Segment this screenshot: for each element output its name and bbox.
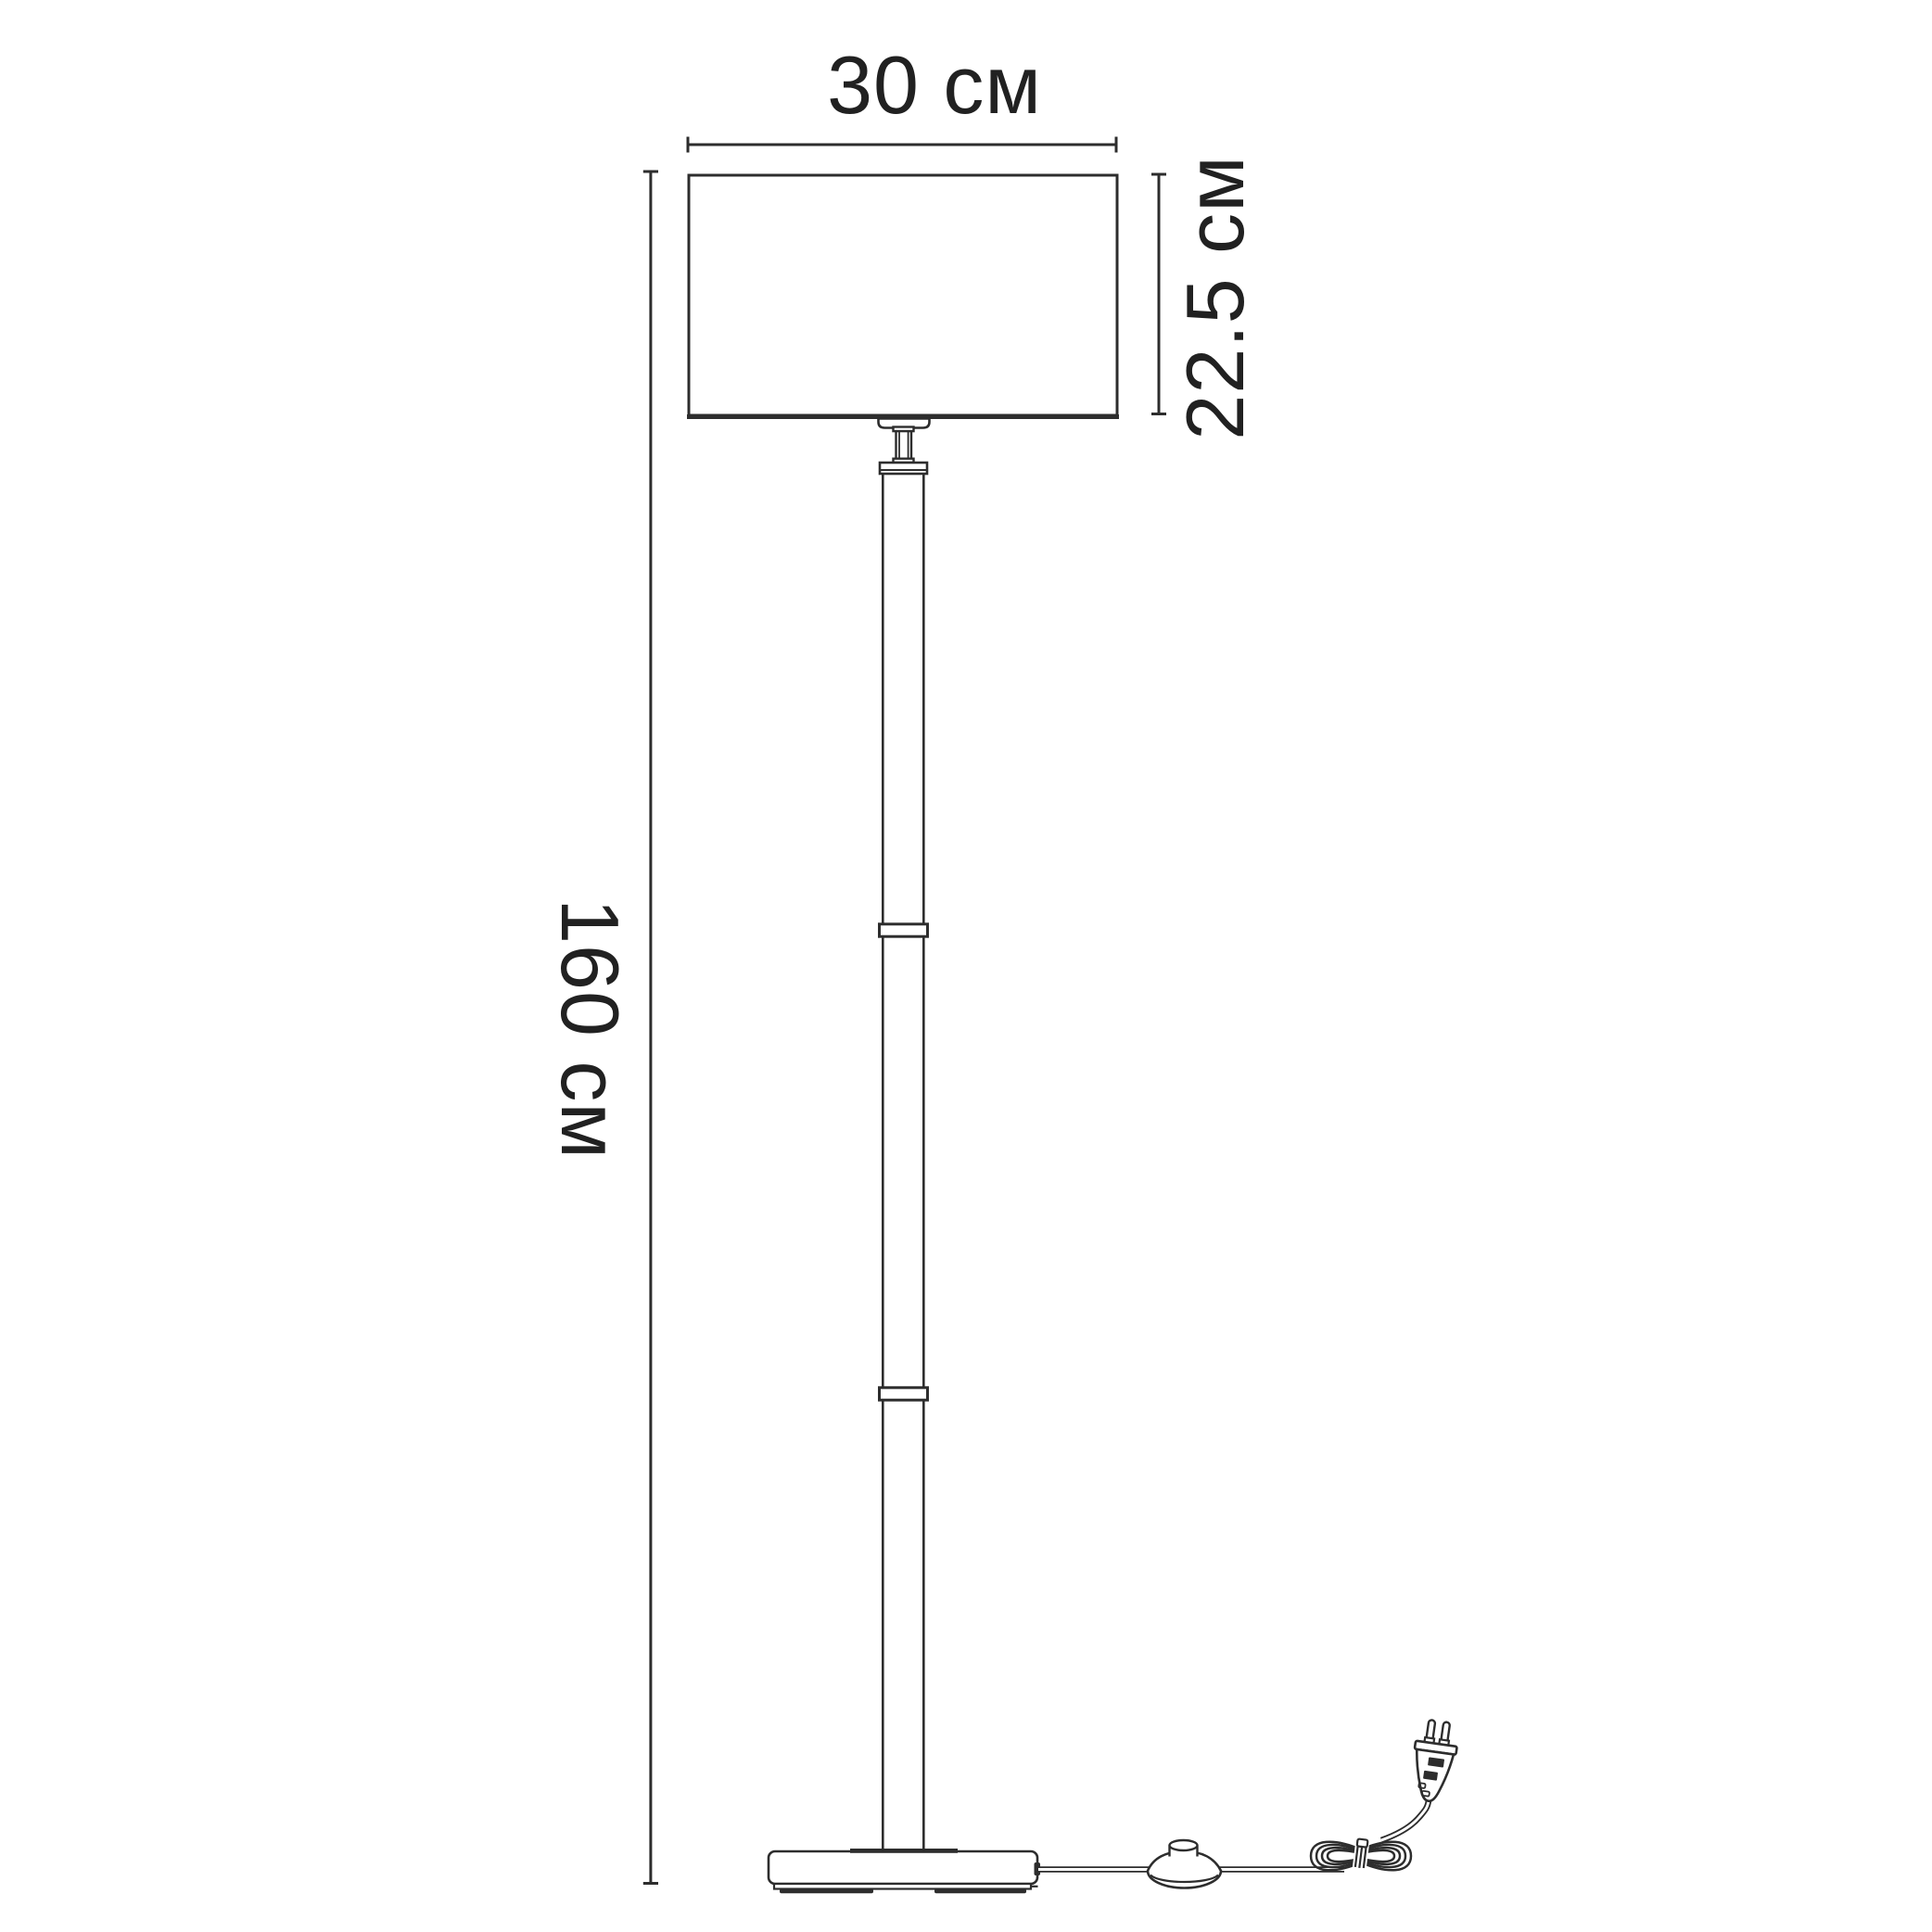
base-foot-pad-left bbox=[780, 1889, 873, 1894]
foot-switch-button bbox=[1170, 1840, 1198, 1857]
lampshade bbox=[687, 175, 1119, 417]
pole-joint-lower bbox=[880, 1388, 928, 1400]
shade-height-label: 22.5 см bbox=[1175, 155, 1256, 439]
total-height-label: 160 см bbox=[549, 898, 630, 1160]
floor-lamp-line-drawing bbox=[0, 0, 1932, 1932]
lamp-base bbox=[769, 1849, 1040, 1893]
foot-switch bbox=[1148, 1840, 1221, 1888]
dimension-line-shade-width bbox=[688, 137, 1116, 153]
base-foot-pad-right bbox=[934, 1889, 1026, 1894]
lamp-pole bbox=[880, 474, 928, 1850]
cord-to-plug bbox=[1381, 1800, 1429, 1840]
shade-width-label: 30 см bbox=[827, 44, 1042, 126]
lamp-socket-neck bbox=[879, 419, 930, 475]
dimension-line-shade-height bbox=[1151, 174, 1166, 414]
dimension-diagram: 30 см 22.5 см 160 см bbox=[0, 0, 1932, 1932]
dimension-line-total-height bbox=[643, 172, 658, 1884]
cord-coil bbox=[1311, 1838, 1411, 1870]
pole-joint-upper bbox=[880, 924, 928, 936]
power-plug bbox=[1407, 1718, 1460, 1803]
